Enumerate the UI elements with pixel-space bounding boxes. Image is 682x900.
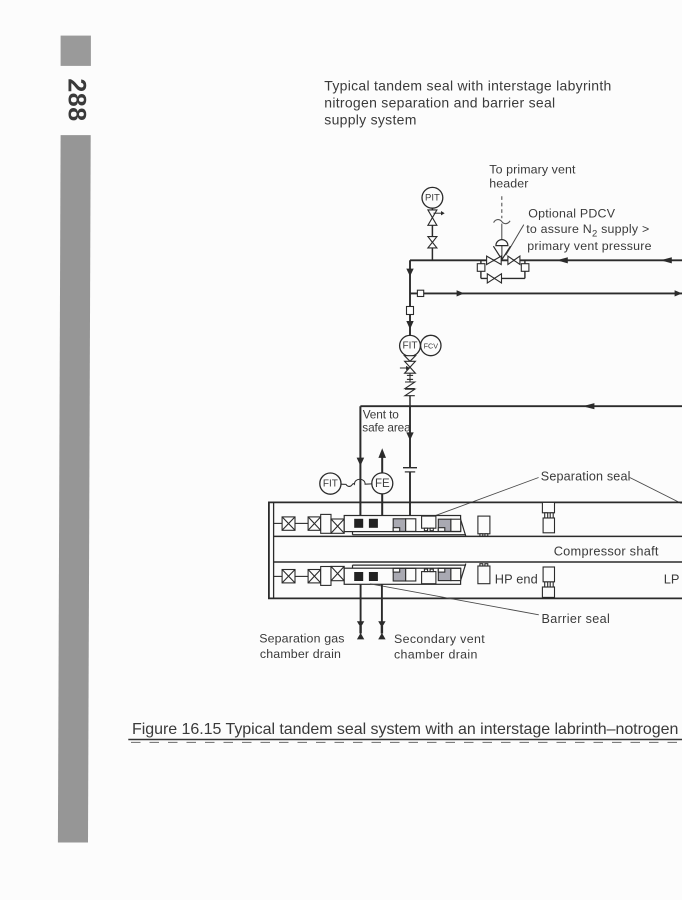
svg-text:chamber drain: chamber drain (260, 647, 341, 661)
svg-text:To primary vent: To primary vent (489, 162, 576, 176)
svg-text:nitrogen separation and barrie: nitrogen separation and barrier seal (324, 94, 555, 110)
svg-text:supply system: supply system (324, 111, 416, 127)
svg-text:Secondary vent: Secondary vent (394, 632, 485, 646)
svg-text:PIT: PIT (425, 193, 440, 204)
svg-text:primary vent pressure: primary vent pressure (527, 239, 651, 253)
svg-text:chamber drain: chamber drain (394, 648, 478, 662)
svg-text:safe area: safe area (362, 420, 411, 434)
svg-text:Typical tandem seal with inter: Typical tandem seal with interstage laby… (324, 77, 611, 93)
svg-text:FCV: FCV (424, 341, 439, 350)
svg-text:Figure 16.15 Typical tandem se: Figure 16.15 Typical tandem seal system … (132, 721, 678, 738)
svg-text:LP: LP (664, 571, 680, 586)
svg-text:to assure N2 supply >: to assure N2 supply > (526, 222, 649, 239)
svg-text:header: header (489, 176, 528, 190)
svg-text:Barrier seal: Barrier seal (542, 612, 611, 626)
svg-text:288: 288 (63, 78, 91, 121)
svg-text:HP end: HP end (495, 571, 538, 586)
svg-text:Optional PDCV: Optional PDCV (528, 207, 615, 221)
svg-text:FE: FE (375, 478, 390, 490)
svg-text:FIT: FIT (403, 341, 418, 352)
svg-text:Separation gas: Separation gas (259, 631, 344, 645)
svg-text:FIT: FIT (323, 479, 338, 490)
svg-text:Compressor shaft: Compressor shaft (554, 544, 659, 559)
svg-text:Separation seal: Separation seal (541, 470, 631, 484)
